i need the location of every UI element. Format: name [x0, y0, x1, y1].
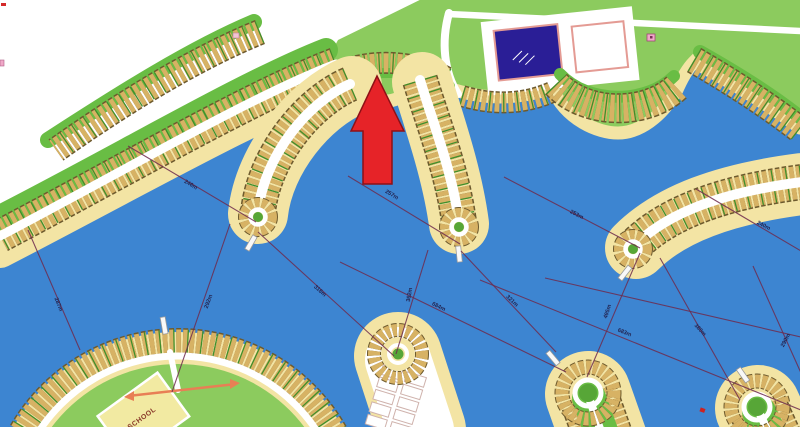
roundabout-icon: [239, 198, 277, 236]
facility-blue-square: [494, 24, 563, 80]
facility-white-square: [572, 21, 629, 72]
marina-island-1: [546, 350, 614, 427]
grid-plot-island: [365, 330, 426, 427]
pink-marker: [233, 33, 239, 38]
pink-kiosk-marker: [647, 34, 655, 41]
site-plan-map[interactable]: SCHOOL: [0, 0, 800, 427]
map-canvas: SCHOOL: [0, 0, 800, 427]
roundabout-icon: [440, 208, 478, 246]
red-tick-marker: [1, 3, 6, 6]
roundabout-icon: [614, 230, 652, 268]
marina-island-2: [731, 367, 788, 427]
pink-marker: [0, 60, 4, 66]
